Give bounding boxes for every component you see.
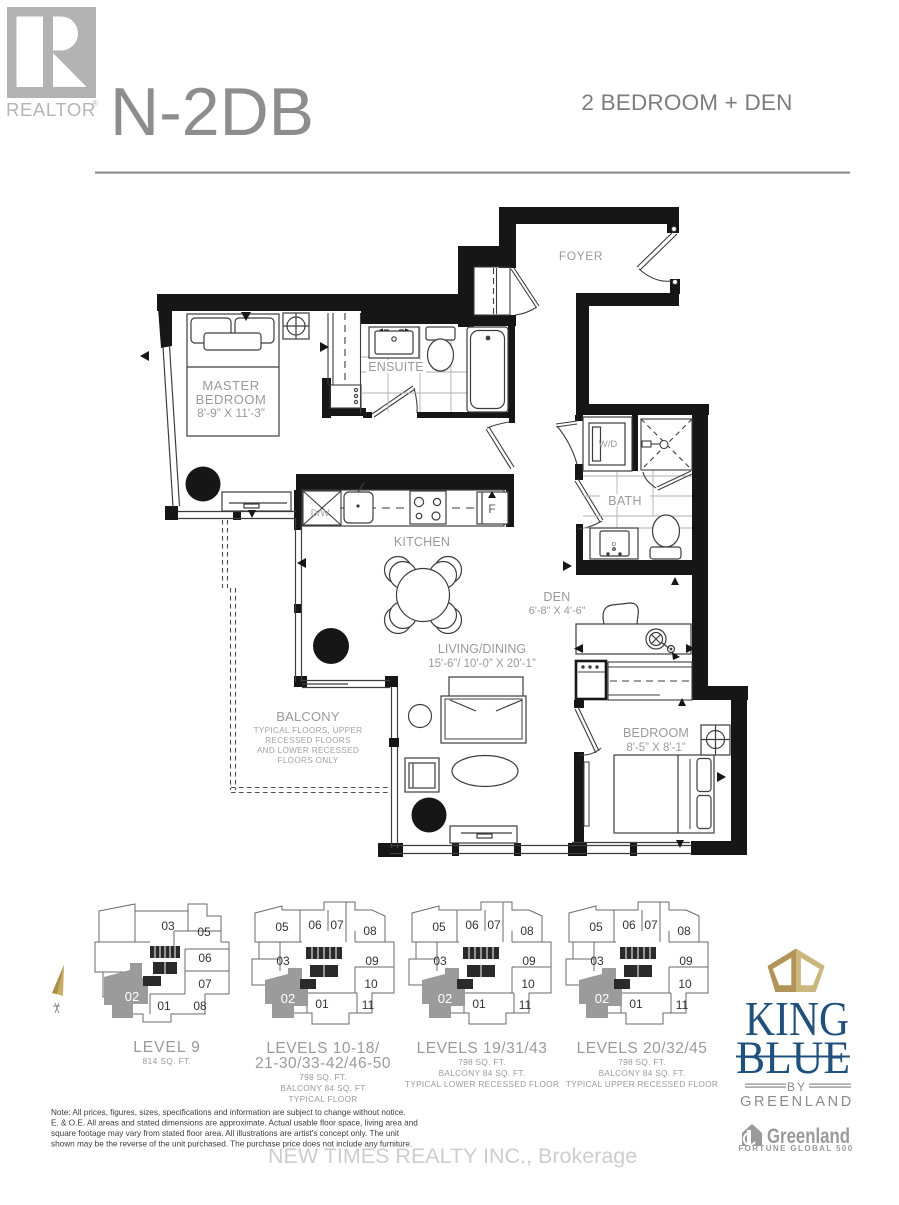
svg-text:TYPICAL UPPER RECESSED FLOOR: TYPICAL UPPER RECESSED FLOOR [566, 1079, 718, 1089]
svg-text:814 SQ. FT.: 814 SQ. FT. [143, 1056, 192, 1066]
svg-text:LEVEL 9: LEVEL 9 [133, 1039, 201, 1056]
svg-text:LIVING/DINING: LIVING/DINING [438, 642, 526, 656]
svg-text:NEW TIMES REALTY INC., Brokera: NEW TIMES REALTY INC., Brokerage [268, 1144, 637, 1168]
svg-text:8'-5” X 8'-1”: 8'-5” X 8'-1” [626, 742, 686, 754]
svg-text:LEVELS 20/32/45: LEVELS 20/32/45 [577, 1040, 708, 1057]
svg-text:07: 07 [198, 977, 212, 991]
svg-text:6'-8” X 4'-6”: 6'-8” X 4'-6” [529, 605, 586, 617]
svg-text:F: F [488, 502, 495, 516]
svg-text:RECESSED FLOORS: RECESSED FLOORS [265, 736, 351, 745]
svg-text:AND LOWER RECESSED: AND LOWER RECESSED [257, 746, 359, 755]
svg-text:TYPICAL FLOOR: TYPICAL FLOOR [288, 1094, 357, 1104]
svg-text:798 SQ. FT.: 798 SQ. FT. [299, 1072, 347, 1082]
svg-text:DEN: DEN [543, 590, 570, 604]
svg-text:BLUE: BLUE [736, 1032, 850, 1084]
svg-text:MASTER: MASTER [202, 378, 259, 393]
svg-text:798 SQ. FT.: 798 SQ. FT. [458, 1057, 506, 1067]
svg-text:03: 03 [161, 919, 175, 933]
svg-text:FOYER: FOYER [559, 249, 603, 263]
svg-text:21-30/33-42/46-50: 21-30/33-42/46-50 [255, 1055, 391, 1072]
svg-text:TYPICAL FLOORS, UPPER: TYPICAL FLOORS, UPPER [254, 726, 363, 735]
svg-text:REALTOR: REALTOR [6, 99, 96, 120]
svg-text:BEDROOM: BEDROOM [196, 392, 267, 407]
svg-text:01: 01 [157, 999, 171, 1013]
svg-text:N-2DB: N-2DB [110, 74, 314, 150]
svg-text:D/W: D/W [311, 508, 330, 519]
svg-text:KITCHEN: KITCHEN [394, 535, 450, 549]
svg-text:15'-6”/ 10'-0” X 20'-1”: 15'-6”/ 10'-0” X 20'-1” [428, 658, 536, 670]
svg-text:06: 06 [198, 951, 212, 965]
svg-text:ENSUITE: ENSUITE [368, 360, 424, 374]
svg-text:FLOORS ONLY: FLOORS ONLY [278, 756, 339, 765]
svg-text:square footage may vary from s: square footage may vary from stated floo… [51, 1129, 400, 1138]
svg-text:05: 05 [197, 925, 211, 939]
svg-text:BALCONY 84 SQ. FT.: BALCONY 84 SQ. FT. [439, 1068, 526, 1078]
svg-text:LEVELS 19/31/43: LEVELS 19/31/43 [417, 1040, 548, 1057]
svg-text:GREENLAND: GREENLAND [740, 1094, 854, 1110]
svg-text:W/D: W/D [599, 439, 618, 450]
svg-text:Note: All prices, figures, siz: Note: All prices, figures, sizes, specif… [51, 1108, 406, 1117]
svg-text:TYPICAL LOWER RECESSED FLOOR: TYPICAL LOWER RECESSED FLOOR [405, 1079, 559, 1089]
svg-text:798 SQ. FT.: 798 SQ. FT. [618, 1057, 666, 1067]
svg-text:D: D [612, 542, 616, 548]
svg-text:BY: BY [787, 1080, 807, 1094]
svg-text:®: ® [92, 99, 98, 108]
svg-text:BALCONY: BALCONY [276, 709, 340, 724]
svg-text:E. & O.E. All areas and stated: E. & O.E. All areas and stated dimension… [51, 1119, 418, 1128]
svg-text:08: 08 [193, 999, 207, 1013]
svg-text:BALCONY 84 SQ. FT: BALCONY 84 SQ. FT [280, 1083, 365, 1093]
svg-text:BEDROOM: BEDROOM [623, 726, 689, 740]
svg-text:2 BEDROOM + DEN: 2 BEDROOM + DEN [581, 90, 792, 115]
svg-text:02: 02 [125, 989, 139, 1004]
svg-text:BALCONY 84 SQ. FT.: BALCONY 84 SQ. FT. [599, 1068, 686, 1078]
svg-text:BATH: BATH [608, 494, 642, 508]
svg-text:FORTUNE GLOBAL 500: FORTUNE GLOBAL 500 [738, 1144, 853, 1153]
svg-text:8'-9” X 11'-3”: 8'-9” X 11'-3” [197, 406, 265, 420]
